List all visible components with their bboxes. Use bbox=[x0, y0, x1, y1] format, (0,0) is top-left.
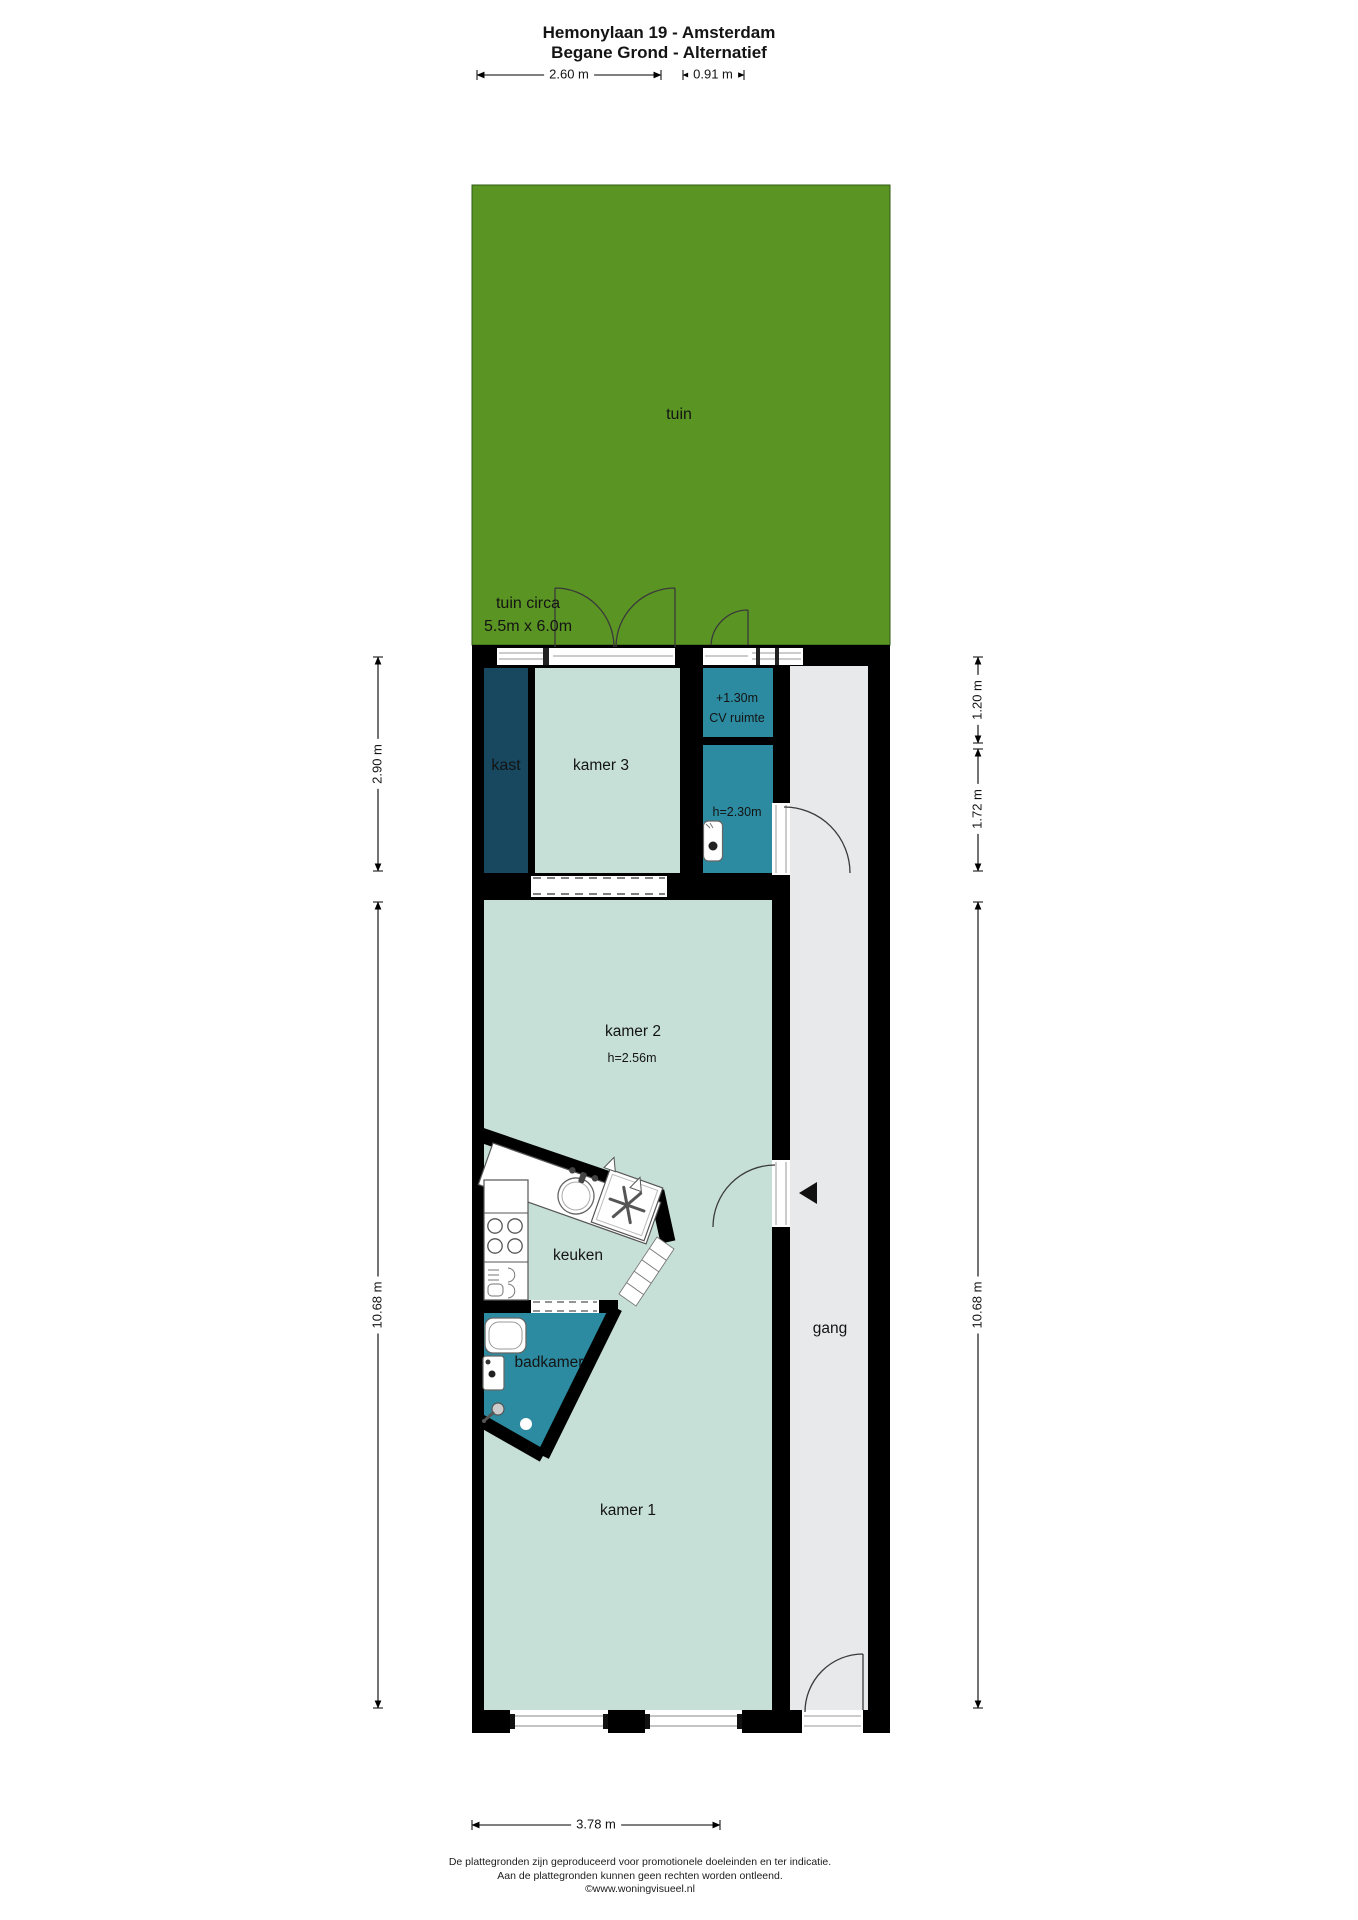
kamer2-label: kamer 2 bbox=[605, 1023, 661, 1041]
drain-icon bbox=[520, 1418, 532, 1430]
kamer3-label: kamer 3 bbox=[573, 757, 629, 775]
kamer1-label: kamer 1 bbox=[600, 1502, 656, 1520]
garden-note-line1: tuin circa bbox=[496, 595, 560, 613]
kamer3-garden-window bbox=[497, 648, 551, 665]
floor-plan-page: Hemonylaan 19 - Amsterdam Begane Grond -… bbox=[0, 0, 1358, 1920]
garden-label: tuin bbox=[666, 406, 692, 424]
dim-right-middle: 1.72 m bbox=[971, 784, 986, 834]
kamer1-window-left bbox=[510, 1710, 608, 1733]
kast-label: kast bbox=[491, 757, 520, 775]
bathtub-icon bbox=[485, 1318, 526, 1353]
keuken-label: keuken bbox=[553, 1247, 603, 1265]
footer-line1: De plattegronden zijn geproduceerd voor … bbox=[449, 1856, 831, 1868]
dim-right-upper: 1.20 m bbox=[971, 675, 986, 725]
dim-right-lower: 10.68 m bbox=[971, 1277, 986, 1334]
cv-level-label: +1.30m bbox=[716, 691, 758, 705]
dim-left-lower: 10.68 m bbox=[371, 1277, 386, 1334]
dim-top-kamer3: 2.60 m bbox=[544, 68, 594, 83]
toilet-height-label: h=2.30m bbox=[713, 805, 762, 819]
floor-plan-svg bbox=[0, 0, 1358, 1920]
garden-note-line2: 5.5m x 6.0m bbox=[484, 618, 572, 636]
gang-label: gang bbox=[813, 1320, 847, 1338]
kamer2-height-label: h=2.56m bbox=[608, 1051, 657, 1065]
footer-line3: ©www.woningvisueel.nl bbox=[585, 1883, 695, 1895]
badkamer-label: badkamer bbox=[515, 1354, 584, 1372]
dim-left-upper: 2.90 m bbox=[371, 739, 386, 789]
page-title-line1: Hemonylaan 19 - Amsterdam bbox=[543, 23, 776, 43]
toilet-icon bbox=[704, 821, 723, 861]
cv-label: CV ruimte bbox=[709, 711, 765, 725]
footer-line2: Aan de plattegronden kunnen geen rechten… bbox=[497, 1870, 782, 1882]
garden-facade bbox=[497, 648, 803, 665]
dim-top-cv: 0.91 m bbox=[688, 68, 738, 83]
kamer3-kamer2-window bbox=[531, 876, 667, 897]
gang-area bbox=[790, 666, 868, 1710]
kamer1-window-right bbox=[645, 1710, 742, 1733]
washbasin-icon bbox=[483, 1356, 504, 1390]
dim-bottom: 3.78 m bbox=[571, 1818, 621, 1833]
page-title-line2: Begane Grond - Alternatief bbox=[551, 43, 767, 63]
badkamer-door-opening bbox=[531, 1300, 599, 1313]
